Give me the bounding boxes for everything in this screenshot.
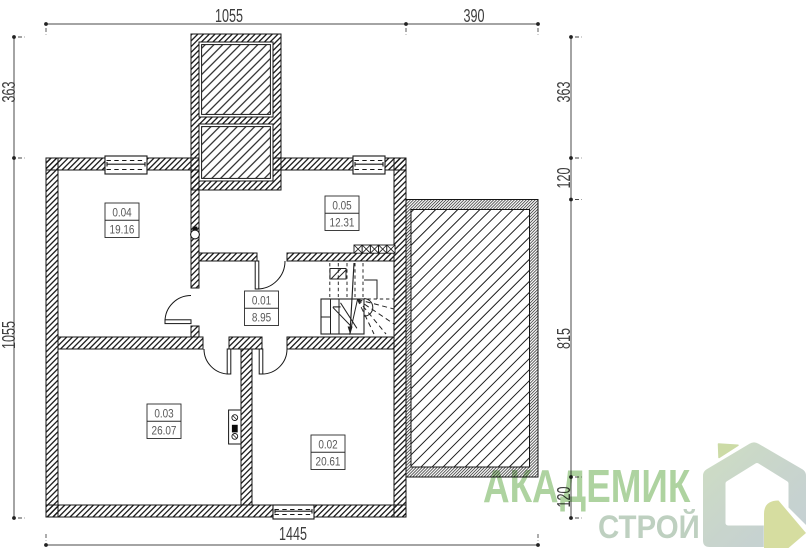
svg-text:120: 120 (555, 167, 575, 188)
svg-text:0.04: 0.04 (112, 207, 131, 220)
svg-text:0.02: 0.02 (318, 439, 337, 452)
svg-text:19.16: 19.16 (110, 224, 135, 237)
svg-text:12.31: 12.31 (330, 217, 355, 230)
svg-text:1445: 1445 (279, 525, 307, 545)
svg-text:390: 390 (464, 7, 485, 27)
svg-text:0.01: 0.01 (252, 295, 271, 308)
svg-text:1055: 1055 (0, 321, 20, 349)
svg-text:0.05: 0.05 (332, 200, 351, 213)
svg-text:0.03: 0.03 (154, 408, 173, 421)
svg-text:363: 363 (555, 82, 575, 103)
svg-text:120: 120 (555, 486, 575, 507)
svg-text:20.61: 20.61 (316, 456, 341, 469)
svg-text:815: 815 (555, 328, 575, 349)
svg-text:1055: 1055 (215, 7, 243, 27)
svg-text:26.07: 26.07 (152, 425, 177, 438)
svg-text:363: 363 (0, 82, 20, 103)
svg-text:8.95: 8.95 (252, 312, 271, 325)
